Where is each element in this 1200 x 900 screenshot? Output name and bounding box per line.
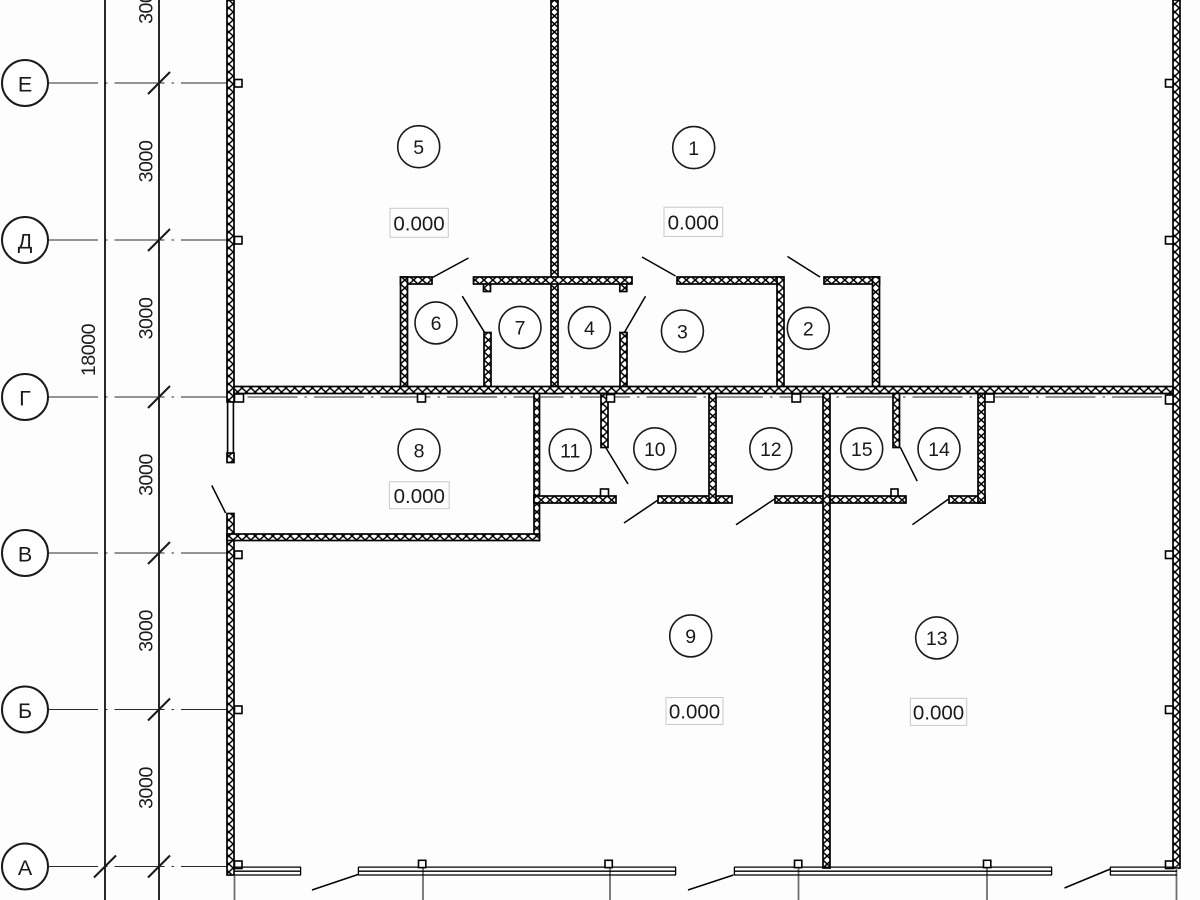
- svg-text:4: 4: [584, 318, 595, 340]
- svg-text:Б: Б: [18, 699, 32, 723]
- svg-text:В: В: [18, 543, 32, 567]
- svg-text:7: 7: [515, 318, 526, 340]
- svg-text:15: 15: [851, 439, 873, 461]
- svg-text:10: 10: [644, 439, 666, 461]
- svg-text:3000: 3000: [136, 0, 158, 24]
- svg-text:0.000: 0.000: [394, 485, 445, 508]
- svg-text:9: 9: [685, 626, 696, 648]
- svg-text:13: 13: [926, 628, 948, 650]
- svg-text:0.000: 0.000: [393, 212, 444, 235]
- svg-text:18000: 18000: [78, 323, 100, 376]
- svg-text:3000: 3000: [136, 140, 158, 182]
- svg-text:6: 6: [431, 313, 442, 335]
- svg-text:3: 3: [677, 321, 688, 343]
- svg-text:0.000: 0.000: [913, 701, 964, 724]
- svg-text:0.000: 0.000: [668, 211, 719, 234]
- svg-text:3000: 3000: [136, 297, 158, 339]
- svg-text:Д: Д: [18, 230, 33, 254]
- svg-text:3000: 3000: [136, 610, 158, 652]
- svg-text:12: 12: [760, 439, 782, 461]
- svg-text:1: 1: [688, 138, 699, 160]
- svg-text:8: 8: [414, 440, 425, 462]
- svg-text:11: 11: [560, 440, 580, 462]
- svg-text:А: А: [18, 856, 33, 880]
- svg-text:5: 5: [413, 137, 424, 159]
- svg-text:3000: 3000: [136, 454, 158, 496]
- svg-text:14: 14: [928, 439, 950, 461]
- svg-text:3000: 3000: [136, 767, 158, 809]
- svg-text:0.000: 0.000: [669, 701, 720, 724]
- svg-text:Е: Е: [18, 73, 32, 97]
- svg-text:2: 2: [803, 319, 814, 341]
- svg-text:Г: Г: [19, 387, 31, 411]
